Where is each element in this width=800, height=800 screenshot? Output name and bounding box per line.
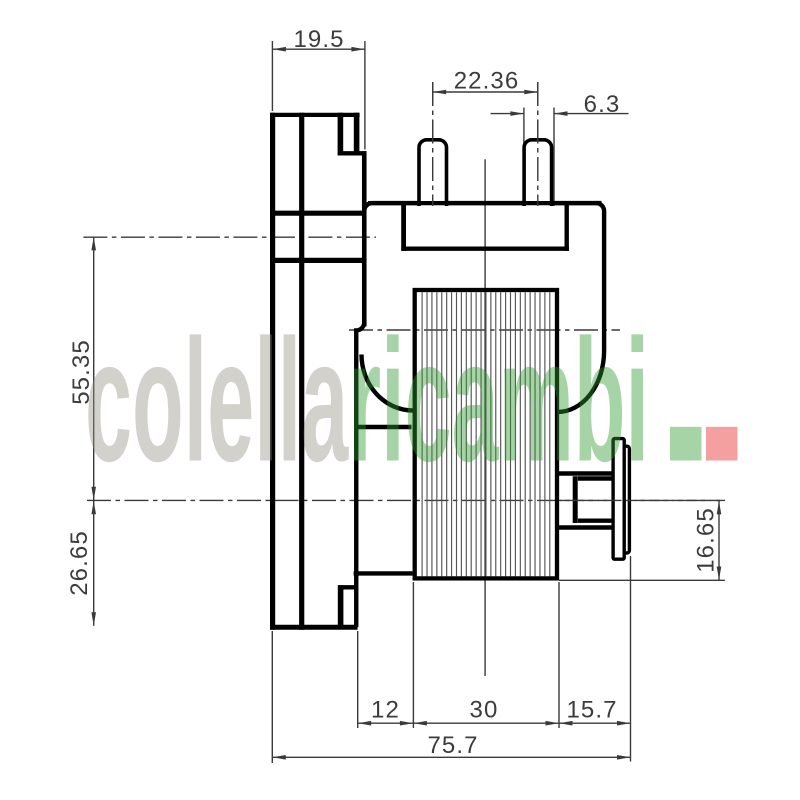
svg-text:16.65: 16.65 [693,507,720,573]
svg-text:75.7: 75.7 [427,732,478,759]
svg-text:colellaricambi: colellaricambi [85,303,649,498]
svg-text:15.7: 15.7 [566,697,617,724]
svg-text:30: 30 [470,697,499,724]
svg-text:22.36: 22.36 [454,67,520,94]
svg-text:26.65: 26.65 [66,530,93,596]
svg-text:12: 12 [371,697,400,724]
svg-text:19.5: 19.5 [293,26,344,53]
svg-text:6.3: 6.3 [584,91,621,118]
